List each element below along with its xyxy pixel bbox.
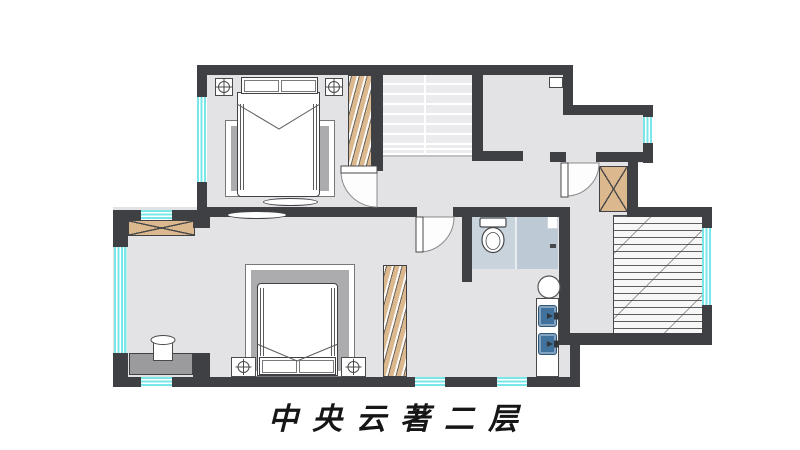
wall-segment xyxy=(113,210,128,247)
plan-title: 中央云著二层 xyxy=(0,394,800,438)
wall-segment xyxy=(193,210,210,228)
wall-segment xyxy=(563,65,573,108)
wall-segment xyxy=(643,105,653,117)
nightstand xyxy=(215,78,233,96)
wall-segment xyxy=(596,152,653,162)
nightstand xyxy=(231,357,256,377)
wall-segment xyxy=(563,105,653,115)
wall-segment xyxy=(559,207,570,343)
wall-segment xyxy=(445,377,497,387)
floor-plan: 中央云著二层 xyxy=(0,0,800,450)
tv-console xyxy=(227,211,287,219)
bed-bottom-pillows xyxy=(259,357,336,375)
wardrobe-hangers-bottom xyxy=(383,265,407,377)
window xyxy=(114,247,127,353)
window xyxy=(141,210,172,220)
hall-niche xyxy=(549,77,563,88)
chair-seat xyxy=(153,341,173,361)
wall-segment xyxy=(193,353,210,387)
cabinet-alcove xyxy=(128,220,195,236)
window xyxy=(497,377,527,387)
window xyxy=(197,97,207,182)
wall-segment xyxy=(550,152,566,162)
wall-segment xyxy=(462,210,472,282)
nightstand xyxy=(325,78,343,96)
wardrobe-hangers-top xyxy=(348,75,372,168)
wall-segment xyxy=(372,65,383,171)
sink-basin xyxy=(538,305,557,327)
stairs xyxy=(383,75,472,157)
wall-segment xyxy=(197,65,573,75)
bed-top xyxy=(237,92,320,197)
window xyxy=(702,228,712,305)
wall-segment xyxy=(702,207,712,228)
wall-segment xyxy=(113,353,128,387)
wall-segment xyxy=(527,377,580,387)
shower-niche xyxy=(547,216,558,229)
wall-segment xyxy=(472,75,483,161)
window xyxy=(141,377,172,387)
window xyxy=(643,117,653,143)
tv-console xyxy=(263,198,318,206)
sink-basin xyxy=(538,333,557,355)
toilet-room-floor xyxy=(472,216,515,269)
window xyxy=(415,377,445,387)
cabinet-passage xyxy=(599,166,628,212)
balcony-wood-floor xyxy=(613,215,704,335)
wall-segment xyxy=(627,207,712,217)
nightstand xyxy=(341,357,366,377)
bed-top-pillows xyxy=(241,77,318,94)
wall-segment xyxy=(559,333,712,345)
wall-segment xyxy=(197,65,207,97)
